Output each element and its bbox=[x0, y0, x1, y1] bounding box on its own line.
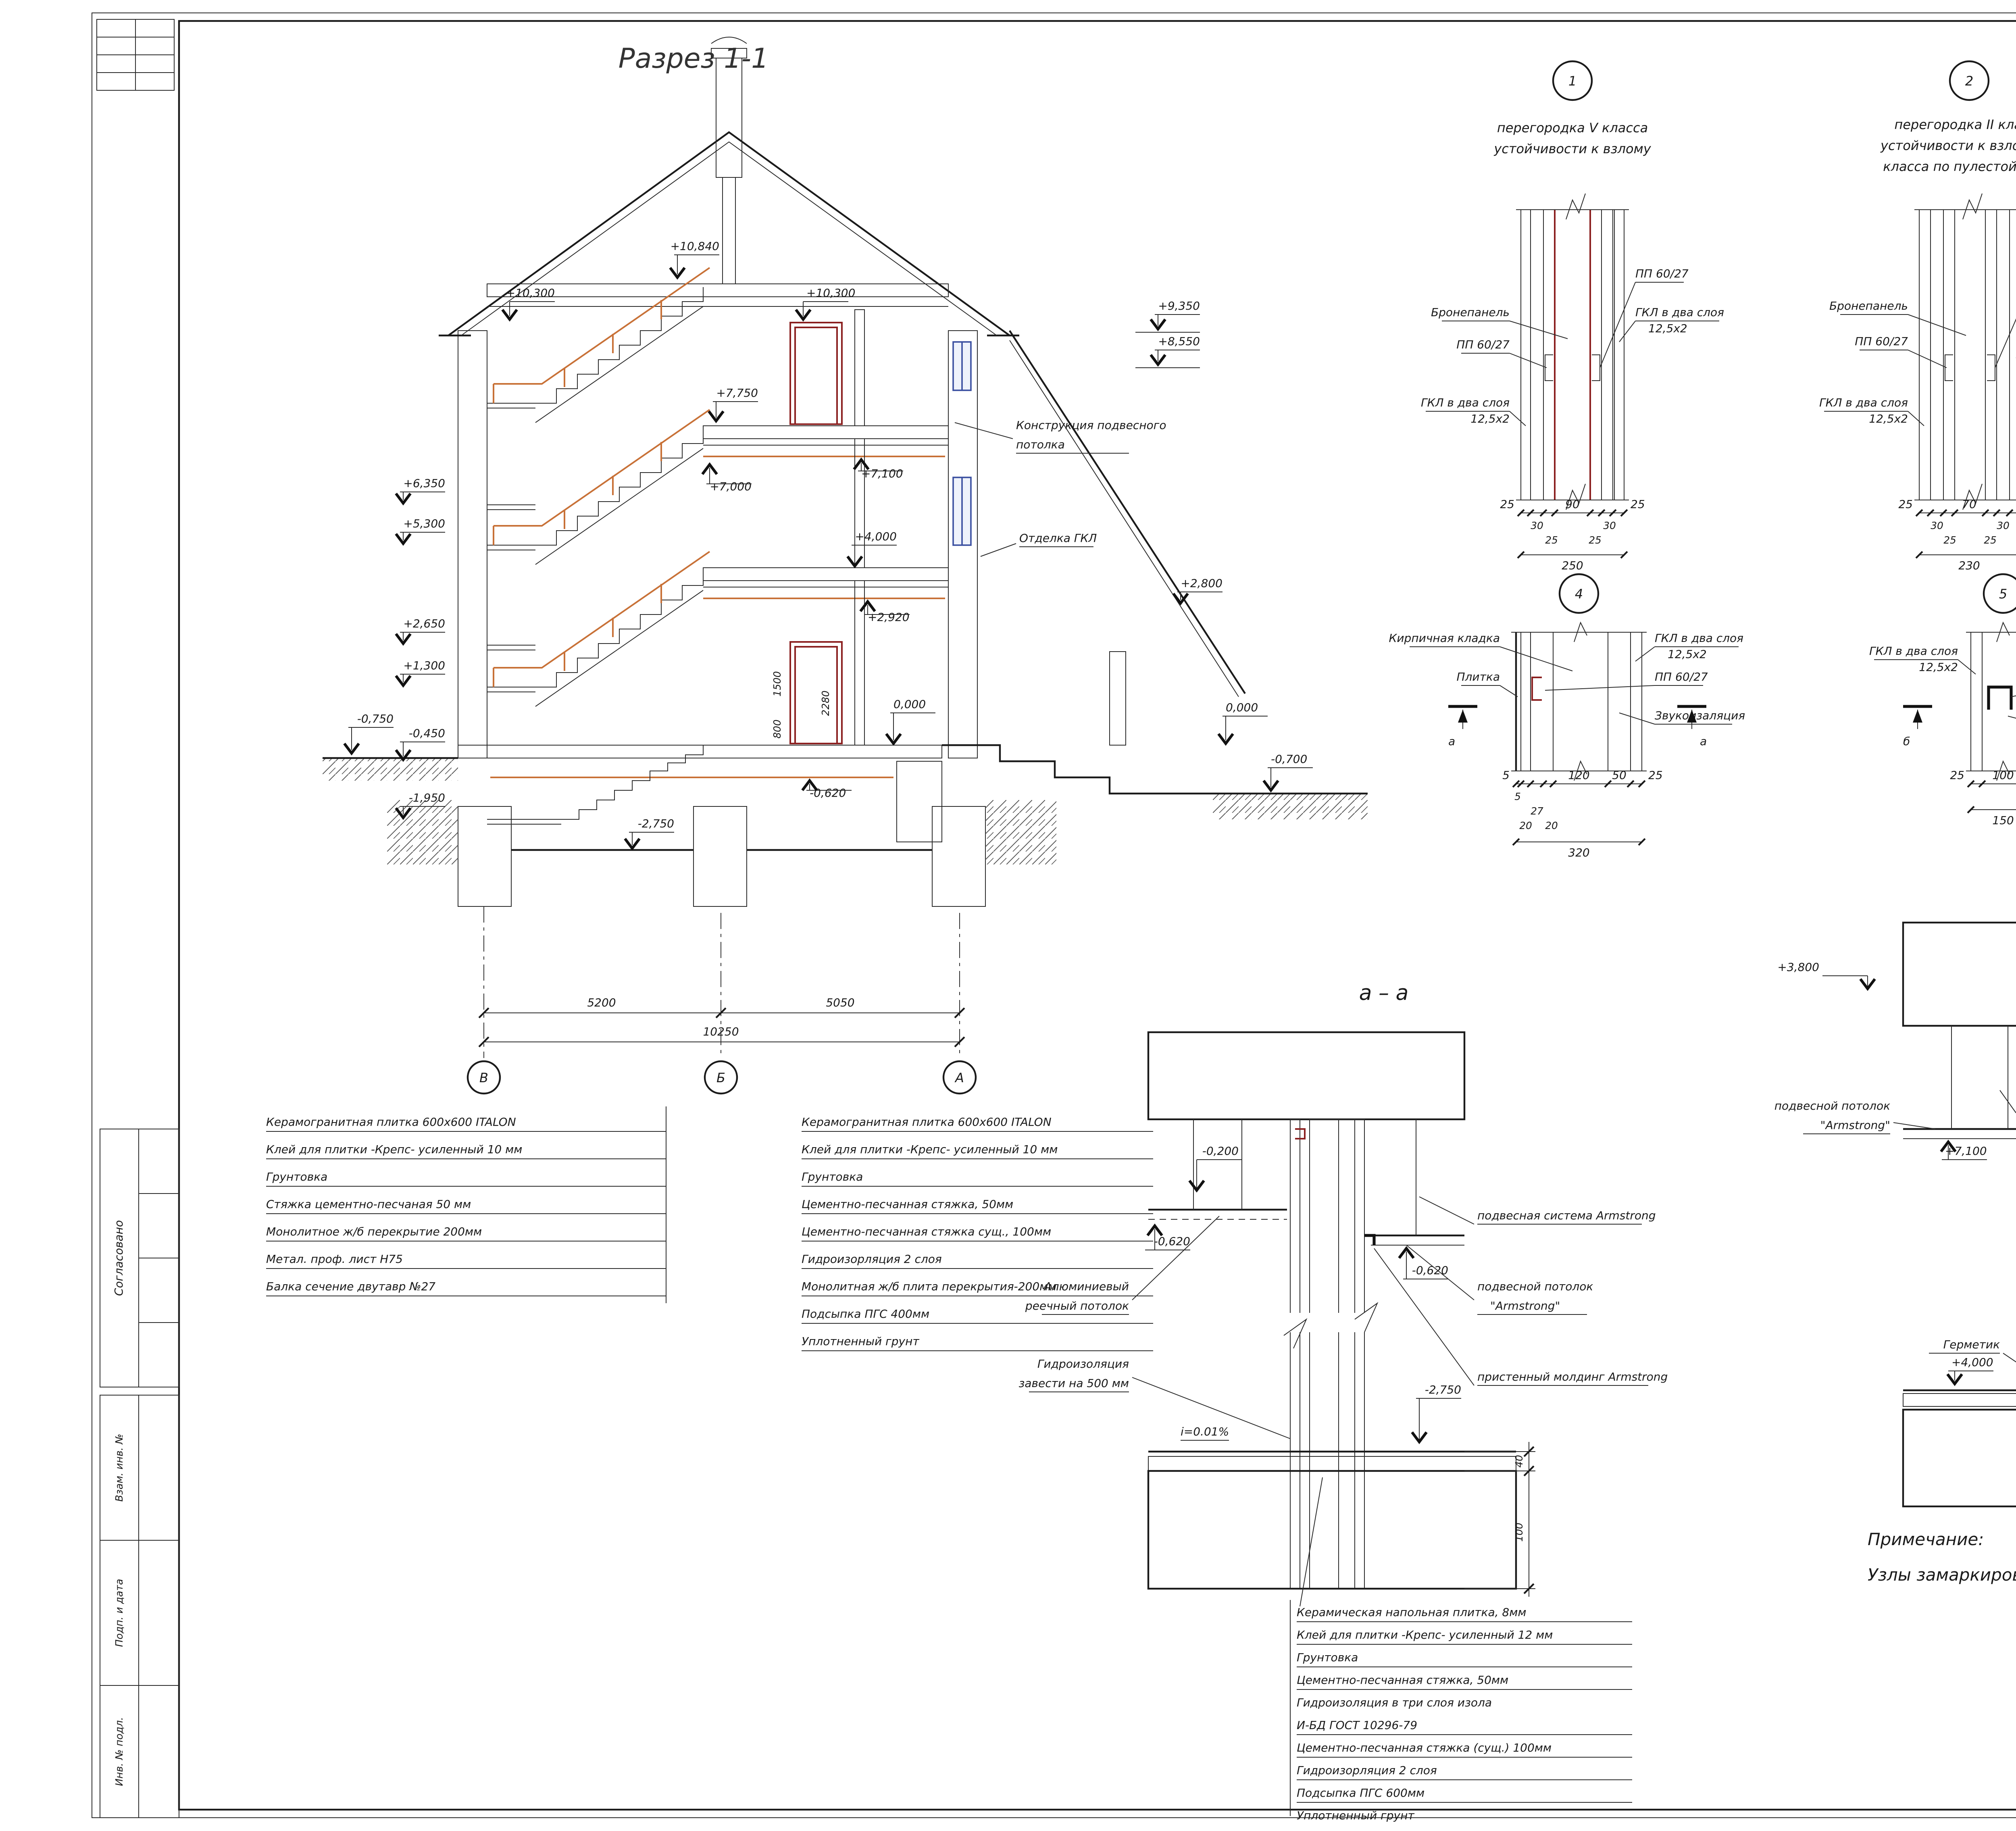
svg-text:Гидроизоляция в три слоя изола: Гидроизоляция в три слоя изола bbox=[1297, 1696, 1492, 1709]
glass-block-wall bbox=[897, 761, 942, 842]
svg-text:устойчивости к взлому и I: устойчивости к взлому и I bbox=[1880, 138, 2016, 153]
svg-text:а: а bbox=[1700, 735, 1707, 748]
detail-4: 4 Кирпичная кладка Плитка ГКЛ в два слоя… bbox=[1389, 574, 1745, 859]
svg-text:"Armstrong": "Armstrong" bbox=[1490, 1299, 1560, 1312]
svg-text:Керамогранитная плитка 600х60: Керамогранитная плитка 600х600 ITALON bbox=[266, 1115, 516, 1129]
svg-text:Клей для плитки -Крепс- усилен: Клей для плитки -Крепс- усиленный 12 мм bbox=[1297, 1628, 1553, 1641]
svg-text:+7,000: +7,000 bbox=[710, 480, 752, 493]
margin-box1-label: Взам. инв. № bbox=[113, 1434, 125, 1502]
svg-text:Гидроизоляция: Гидроизоляция bbox=[1037, 1357, 1129, 1371]
building-section: Конструкция подвесного потолка Отделка Г… bbox=[323, 37, 1368, 1094]
section-a-a-title: а – а bbox=[1359, 981, 1409, 1005]
svg-text:Гидроизорляция 2 слоя: Гидроизорляция 2 слоя bbox=[1297, 1764, 1437, 1777]
svg-text:10250: 10250 bbox=[703, 1025, 739, 1038]
stair-railings bbox=[494, 268, 710, 687]
svg-text:Керамогранитная плитка 600х60: Керамогранитная плитка 600х600 ITALON bbox=[802, 1115, 1052, 1129]
svg-text:класса по пулестойкости: класса по пулестойкости bbox=[1883, 159, 2016, 174]
svg-text:Цементно-песчанная стяжка, 50м: Цементно-песчанная стяжка, 50мм bbox=[802, 1198, 1013, 1211]
note: Примечание: Узлы замаркированы на листах… bbox=[1868, 1529, 2016, 1585]
detail-1-dims: 25 90 25 30 25 25 30 250 bbox=[1500, 498, 1645, 572]
svg-text:пристенный молдинг Armstrong: пристенный молдинг Armstrong bbox=[1477, 1370, 1668, 1383]
svg-text:230: 230 bbox=[1958, 559, 1980, 572]
svg-text:ПП 60/27: ПП 60/27 bbox=[1855, 335, 1908, 348]
sheet-frame bbox=[92, 13, 2016, 1818]
gkl-finish-label: Отделка ГКЛ bbox=[1019, 531, 1097, 545]
svg-text:а: а bbox=[1448, 735, 1455, 748]
svg-text:подвесная система Armstrong: подвесная система Armstrong bbox=[1477, 1209, 1656, 1222]
svg-text:5: 5 bbox=[1514, 791, 1521, 802]
aa-left-ceiling bbox=[1148, 1119, 1287, 1219]
detail-1: 1 перегородка V класса устойчивости к вз… bbox=[1421, 61, 1724, 572]
doors bbox=[790, 323, 842, 744]
svg-text:+10,300: +10,300 bbox=[806, 286, 855, 300]
porch bbox=[323, 331, 1368, 819]
svg-text:i=0.01%: i=0.01% bbox=[1181, 1425, 1229, 1438]
svg-text:250: 250 bbox=[1562, 559, 1583, 572]
section-mark-a-left: а bbox=[1448, 706, 1477, 748]
svg-text:-2,750: -2,750 bbox=[1425, 1383, 1461, 1396]
svg-text:90: 90 bbox=[1565, 498, 1580, 511]
svg-text:Цементно-песчанная стяжка, 50м: Цементно-песчанная стяжка, 50мм bbox=[1297, 1673, 1508, 1687]
svg-text:25: 25 bbox=[1545, 534, 1558, 546]
svg-text:Гидроизорляция 2 слоя: Гидроизорляция 2 слоя bbox=[802, 1252, 942, 1266]
svg-text:ГКЛ в два слоя: ГКЛ в два слоя bbox=[1421, 396, 1510, 409]
svg-text:100: 100 bbox=[1513, 1523, 1525, 1541]
interior-partition bbox=[855, 310, 864, 745]
svg-text:27: 27 bbox=[1531, 805, 1543, 817]
svg-text:+5,300: +5,300 bbox=[403, 517, 445, 530]
margin-agreed-label: Согласовано bbox=[112, 1220, 125, 1296]
svg-text:25: 25 bbox=[1950, 769, 1964, 782]
svg-text:Бронепанель: Бронепанель bbox=[1829, 299, 1908, 312]
margin-box3-label: Инв. № подл. bbox=[113, 1717, 125, 1786]
svg-text:-1,950: -1,950 bbox=[409, 791, 445, 804]
spec-list-axis-a: Керамогранитная плитка 600х600 ITALON Кл… bbox=[802, 1115, 1153, 1351]
svg-text:25: 25 bbox=[1500, 498, 1514, 511]
bb-left-ceiling bbox=[1903, 1026, 2016, 1139]
section-mark-b-left: б bbox=[1903, 706, 1932, 748]
svg-text:2280: 2280 bbox=[820, 690, 831, 716]
svg-text:800: 800 bbox=[771, 719, 783, 738]
svg-text:перегородка V класса: перегородка V класса bbox=[1497, 120, 1648, 135]
detail-5: 5 ГКЛ в два слоя12,5х2 ГКЛ в два слоя12,… bbox=[1869, 574, 2016, 827]
svg-text:ГКЛ в два слоя: ГКЛ в два слоя bbox=[1869, 644, 1958, 658]
svg-text:Стяжка цементно-песчаная 50 мм: Стяжка цементно-песчаная 50 мм bbox=[266, 1198, 471, 1211]
spec-list-axis-v: Керамогранитная плитка 600х600 ITALON Кл… bbox=[266, 1106, 666, 1303]
svg-text:1500: 1500 bbox=[771, 671, 783, 696]
svg-text:-0,200: -0,200 bbox=[1202, 1144, 1239, 1158]
margin-box2-label: Подп. и дата bbox=[113, 1579, 125, 1647]
svg-text:ГКЛ в два слоя: ГКЛ в два слоя bbox=[1655, 631, 1743, 645]
svg-text:-0,750: -0,750 bbox=[357, 712, 394, 725]
svg-text:30: 30 bbox=[1931, 520, 1943, 531]
svg-text:Клей для плитки -Крепс- усилен: Клей для плитки -Крепс- усиленный 10 мм bbox=[802, 1143, 1058, 1156]
svg-text:+2,800: +2,800 bbox=[1181, 577, 1223, 590]
detail-2-dims: 25 70 25 30 25 25 30 230 bbox=[1898, 498, 2016, 572]
svg-text:ГКЛ в два слоя: ГКЛ в два слоя bbox=[1635, 306, 1724, 319]
svg-text:Б: Б bbox=[716, 1070, 725, 1085]
svg-text:б: б bbox=[1903, 735, 1910, 748]
svg-text:20: 20 bbox=[1545, 820, 1558, 831]
elevation-marks: +10,300 +10,300 +10,840 +7,750 +7,000 +7… bbox=[344, 240, 1313, 848]
svg-text:30: 30 bbox=[1997, 520, 2010, 531]
svg-text:25: 25 bbox=[1943, 534, 1956, 546]
svg-text:Монолитная ж/б плита перекрыт: Монолитная ж/б плита перекрытия-200мм bbox=[802, 1280, 1056, 1293]
chimney bbox=[716, 58, 742, 177]
svg-text:+2,920: +2,920 bbox=[868, 610, 910, 624]
svg-text:0,000: 0,000 bbox=[893, 698, 926, 711]
svg-text:Подсыпка ПГС 600мм: Подсыпка ПГС 600мм bbox=[1297, 1786, 1425, 1800]
svg-text:50: 50 bbox=[1612, 769, 1627, 782]
foundation bbox=[387, 800, 1056, 906]
svg-text:устойчивости к взлому: устойчивости к взлому bbox=[1493, 141, 1651, 156]
svg-text:+4,000: +4,000 bbox=[855, 530, 897, 543]
svg-text:150: 150 bbox=[1992, 814, 2014, 827]
left-wall bbox=[458, 331, 487, 758]
svg-text:Уплотненный грунт: Уплотненный грунт bbox=[1297, 1809, 1414, 1822]
svg-text:25: 25 bbox=[1984, 534, 1997, 546]
svg-text:+10,840: +10,840 bbox=[671, 240, 719, 253]
svg-text:25: 25 bbox=[1898, 498, 1913, 511]
svg-text:120: 120 bbox=[1568, 769, 1589, 782]
svg-text:30: 30 bbox=[1603, 520, 1616, 531]
svg-text:+1,300: +1,300 bbox=[403, 659, 445, 672]
detail-2: 2 перегородка II класса устойчивости к в… bbox=[1819, 61, 2016, 572]
svg-text:Уплотненный грунт: Уплотненный грунт bbox=[802, 1335, 919, 1348]
svg-text:Герметик: Герметик bbox=[1943, 1338, 2000, 1351]
note-body: Узлы замаркированы на листах 15, 16 и 17 bbox=[1868, 1565, 2016, 1585]
svg-text:Метал. проф. лист Н75: Метал. проф. лист Н75 bbox=[266, 1252, 403, 1266]
svg-text:20: 20 bbox=[1519, 820, 1532, 831]
svg-text:А: А bbox=[954, 1070, 964, 1085]
svg-text:12,5х2: 12,5х2 bbox=[1668, 648, 1707, 661]
svg-text:0,000: 0,000 bbox=[1226, 701, 1258, 714]
svg-text:+10,300: +10,300 bbox=[506, 286, 555, 300]
svg-text:+8,550: +8,550 bbox=[1158, 335, 1200, 348]
svg-text:Цементно-песчанная стяжка сущ.: Цементно-песчанная стяжка сущ., 100мм bbox=[802, 1225, 1051, 1238]
sheet-title: Разрез 1-1 bbox=[619, 43, 769, 75]
bb-bottom-floors bbox=[1903, 1390, 2016, 1506]
svg-text:-0,450: -0,450 bbox=[409, 727, 445, 740]
svg-text:Клей для плитки -Крепс- усилен: Клей для плитки -Крепс- усиленный 10 мм bbox=[266, 1143, 522, 1156]
svg-text:12,5х2: 12,5х2 bbox=[1919, 660, 1958, 674]
svg-text:Цементно-песчанная стяжка (сущ: Цементно-песчанная стяжка (сущ.) 100мм bbox=[1297, 1741, 1552, 1754]
svg-text:1: 1 bbox=[1568, 73, 1577, 89]
svg-text:320: 320 bbox=[1568, 846, 1589, 859]
ceiling-structure-label: Конструкция подвесного bbox=[1016, 419, 1166, 432]
svg-text:Монолитное ж/б перекрытие 200м: Монолитное ж/б перекрытие 200мм bbox=[266, 1225, 482, 1238]
svg-text:Плитка: Плитка bbox=[1456, 670, 1500, 683]
drawing-sheet: Согласовано Взам. инв. № Подп. и дата Ин… bbox=[0, 0, 2016, 1831]
windows bbox=[953, 342, 971, 545]
svg-text:5: 5 bbox=[1502, 769, 1510, 782]
vertical-dims: 2280 1500 800 bbox=[771, 671, 831, 738]
note-title: Примечание: bbox=[1868, 1529, 1984, 1549]
svg-text:ПП 60/27: ПП 60/27 bbox=[1635, 267, 1689, 280]
svg-text:12,5х2: 12,5х2 bbox=[1648, 322, 1687, 335]
svg-text:реечный потолок: реечный потолок bbox=[1025, 1299, 1129, 1312]
svg-text:ПП 60/27: ПП 60/27 bbox=[1655, 670, 1708, 683]
building-labels: Конструкция подвесного потолка Отделка Г… bbox=[955, 419, 1166, 556]
svg-text:100: 100 bbox=[1992, 769, 2014, 782]
svg-text:Грунтовка: Грунтовка bbox=[266, 1170, 327, 1183]
svg-text:Кирпичная кладка: Кирпичная кладка bbox=[1389, 631, 1500, 645]
svg-text:25: 25 bbox=[1631, 498, 1645, 511]
svg-text:+9,350: +9,350 bbox=[1158, 299, 1200, 312]
margin-stamp: Согласовано Взам. инв. № Подп. и дата Ин… bbox=[100, 1129, 179, 1818]
svg-text:70: 70 bbox=[1962, 498, 1976, 511]
aa-right-ceiling bbox=[1364, 1119, 1464, 1245]
svg-text:+2,650: +2,650 bbox=[403, 617, 445, 630]
svg-text:-0,620: -0,620 bbox=[1154, 1235, 1190, 1248]
svg-text:ПП 60/27: ПП 60/27 bbox=[1456, 338, 1510, 351]
svg-text:2: 2 bbox=[1965, 73, 1973, 89]
svg-text:подвесной потолок: подвесной потолок bbox=[1477, 1280, 1593, 1293]
aa-right-dims: 40 100 bbox=[1464, 1442, 1535, 1597]
svg-text:12,5х2: 12,5х2 bbox=[1470, 412, 1510, 425]
svg-text:И-БД ГОСТ 10296-79: И-БД ГОСТ 10296-79 bbox=[1297, 1719, 1417, 1732]
svg-text:40: 40 bbox=[1513, 1455, 1525, 1468]
svg-text:30: 30 bbox=[1531, 520, 1543, 531]
svg-text:5: 5 bbox=[1999, 586, 2007, 602]
svg-text:перегородка II класса: перегородка II класса bbox=[1894, 117, 2016, 132]
stair-landings bbox=[487, 403, 561, 824]
svg-text:Подсыпка ПГС 400мм: Подсыпка ПГС 400мм bbox=[802, 1307, 929, 1321]
svg-text:+7,750: +7,750 bbox=[716, 386, 758, 400]
svg-text:5200: 5200 bbox=[587, 996, 616, 1009]
section-a-a: а – а -0,200 -0,620 -0,620 подвесная сис… bbox=[1018, 981, 1668, 1606]
detail-4-dims: 5 120 50 25 5 27 20 20 320 bbox=[1502, 769, 1662, 859]
svg-text:Керамическая напольная плитка,: Керамическая напольная плитка, 8мм bbox=[1297, 1606, 1527, 1619]
axis-dimensions: 5200 5050 10250 В Б А bbox=[468, 906, 976, 1094]
spec-list-floor: Керамическая напольная плитка, 8мм Клей … bbox=[1290, 1600, 1632, 1822]
staircase bbox=[487, 268, 710, 824]
svg-text:5050: 5050 bbox=[826, 996, 854, 1009]
detail-5-dims: 25 100 25 150 bbox=[1950, 769, 2016, 827]
svg-text:25: 25 bbox=[1648, 769, 1663, 782]
svg-text:В: В bbox=[479, 1070, 488, 1085]
floor-slabs bbox=[458, 284, 948, 850]
svg-text:Грунтовка: Грунтовка bbox=[1297, 1651, 1358, 1664]
svg-text:25: 25 bbox=[1589, 534, 1602, 546]
svg-text:подвесной потолок: подвесной потолок bbox=[1774, 1099, 1890, 1112]
svg-text:-2,750: -2,750 bbox=[638, 817, 674, 830]
svg-text:потолка: потолка bbox=[1016, 438, 1065, 451]
aa-floor bbox=[1148, 1452, 1516, 1606]
svg-text:4: 4 bbox=[1575, 586, 1583, 602]
svg-text:+4,000: +4,000 bbox=[1951, 1356, 1993, 1369]
svg-text:Бронепанель: Бронепанель bbox=[1431, 306, 1510, 319]
svg-text:ГКЛ в два слоя: ГКЛ в два слоя bbox=[1819, 396, 1908, 409]
svg-text:+6,350: +6,350 bbox=[403, 477, 445, 490]
svg-text:Балка сечение двутавр №27: Балка сечение двутавр №27 bbox=[266, 1280, 435, 1293]
svg-text:завести на 500 мм: завести на 500 мм bbox=[1018, 1377, 1129, 1390]
svg-text:-0,700: -0,700 bbox=[1271, 752, 1307, 766]
svg-text:+3,800: +3,800 bbox=[1777, 960, 1819, 974]
svg-text:"Armstrong": "Armstrong" bbox=[1820, 1119, 1890, 1132]
svg-text:12,5х2: 12,5х2 bbox=[1869, 412, 1908, 425]
corner-stamp-table bbox=[97, 19, 174, 90]
svg-text:Звукоизаляция: Звукоизаляция bbox=[1655, 709, 1745, 722]
svg-text:Грунтовка: Грунтовка bbox=[802, 1170, 863, 1183]
section-b-b: б – б +3,800 +7,100 +7,000 ПНП 28/27 под… bbox=[1774, 865, 2016, 1506]
